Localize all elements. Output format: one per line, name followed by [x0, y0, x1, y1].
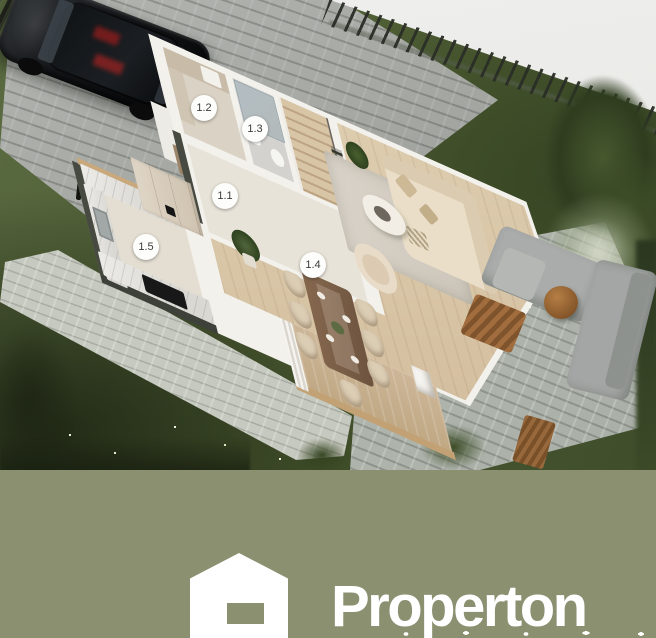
watermark-brand: Properton	[331, 573, 586, 638]
room-label-1-1: 1.1	[212, 183, 238, 209]
room-label-1-3: 1.3	[242, 116, 268, 142]
wildflowers	[55, 415, 315, 467]
room-label-1-2: 1.2	[191, 95, 217, 121]
room-label-1-4: 1.4	[300, 252, 326, 278]
scene-3d-view: 1.1 1.2 1.3 1.4 1.5	[0, 0, 656, 470]
house-icon-door	[227, 603, 264, 624]
round-side-table	[544, 286, 578, 319]
room-label-1-5: 1.5	[133, 234, 159, 260]
watermark-tagline-fragment	[396, 630, 652, 638]
floor-plan-render: 1.1 1.2 1.3 1.4 1.5 1.1 Hol 1.2 Pom. gos…	[0, 0, 656, 638]
